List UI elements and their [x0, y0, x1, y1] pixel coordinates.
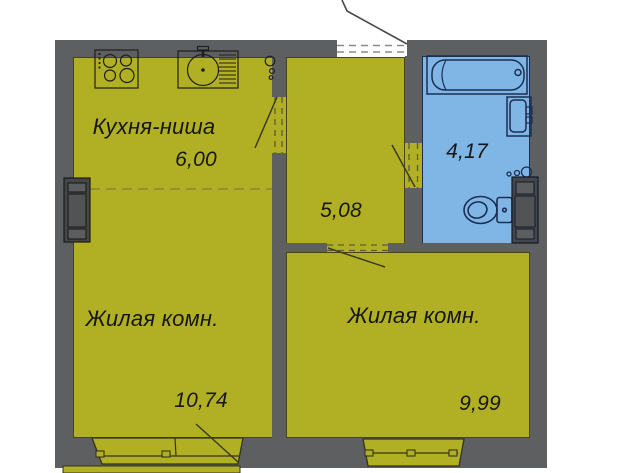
- kitchen-door-opening: [272, 97, 286, 153]
- living-right-area: 9,99: [459, 392, 501, 416]
- kitchen-label: Кухня-ниша: [93, 114, 216, 140]
- bathroom-door-opening: [405, 143, 422, 188]
- hallway-area: 5,08: [320, 199, 362, 223]
- entrance-opening: [337, 40, 407, 57]
- wall-left: [55, 40, 73, 468]
- wall-hall-room-right: [388, 243, 530, 252]
- bathroom-area: 4,17: [446, 140, 488, 164]
- wall-hall-room-left: [286, 243, 327, 252]
- wall-bottom: [55, 437, 547, 468]
- living-left-label: Жилая комн.: [85, 306, 218, 332]
- living-right-label: Жилая комн.: [347, 303, 480, 329]
- kitchen-area: 6,00: [175, 148, 217, 172]
- wall-top-right: [407, 40, 547, 57]
- wall-kitchen-hall-upper: [272, 57, 286, 97]
- wall-bathroom-upper: [405, 56, 422, 143]
- wall-bathroom-lower: [405, 188, 422, 244]
- wall-top-left: [55, 40, 337, 57]
- wall-right: [530, 40, 547, 468]
- floor-plan: Кухня-ниша 6,00 5,08 4,17 Жилая комн. 10…: [0, 0, 640, 473]
- room-door-opening: [327, 243, 388, 252]
- wall-rooms-divider: [272, 153, 286, 438]
- living-left-area: 10,74: [174, 389, 228, 413]
